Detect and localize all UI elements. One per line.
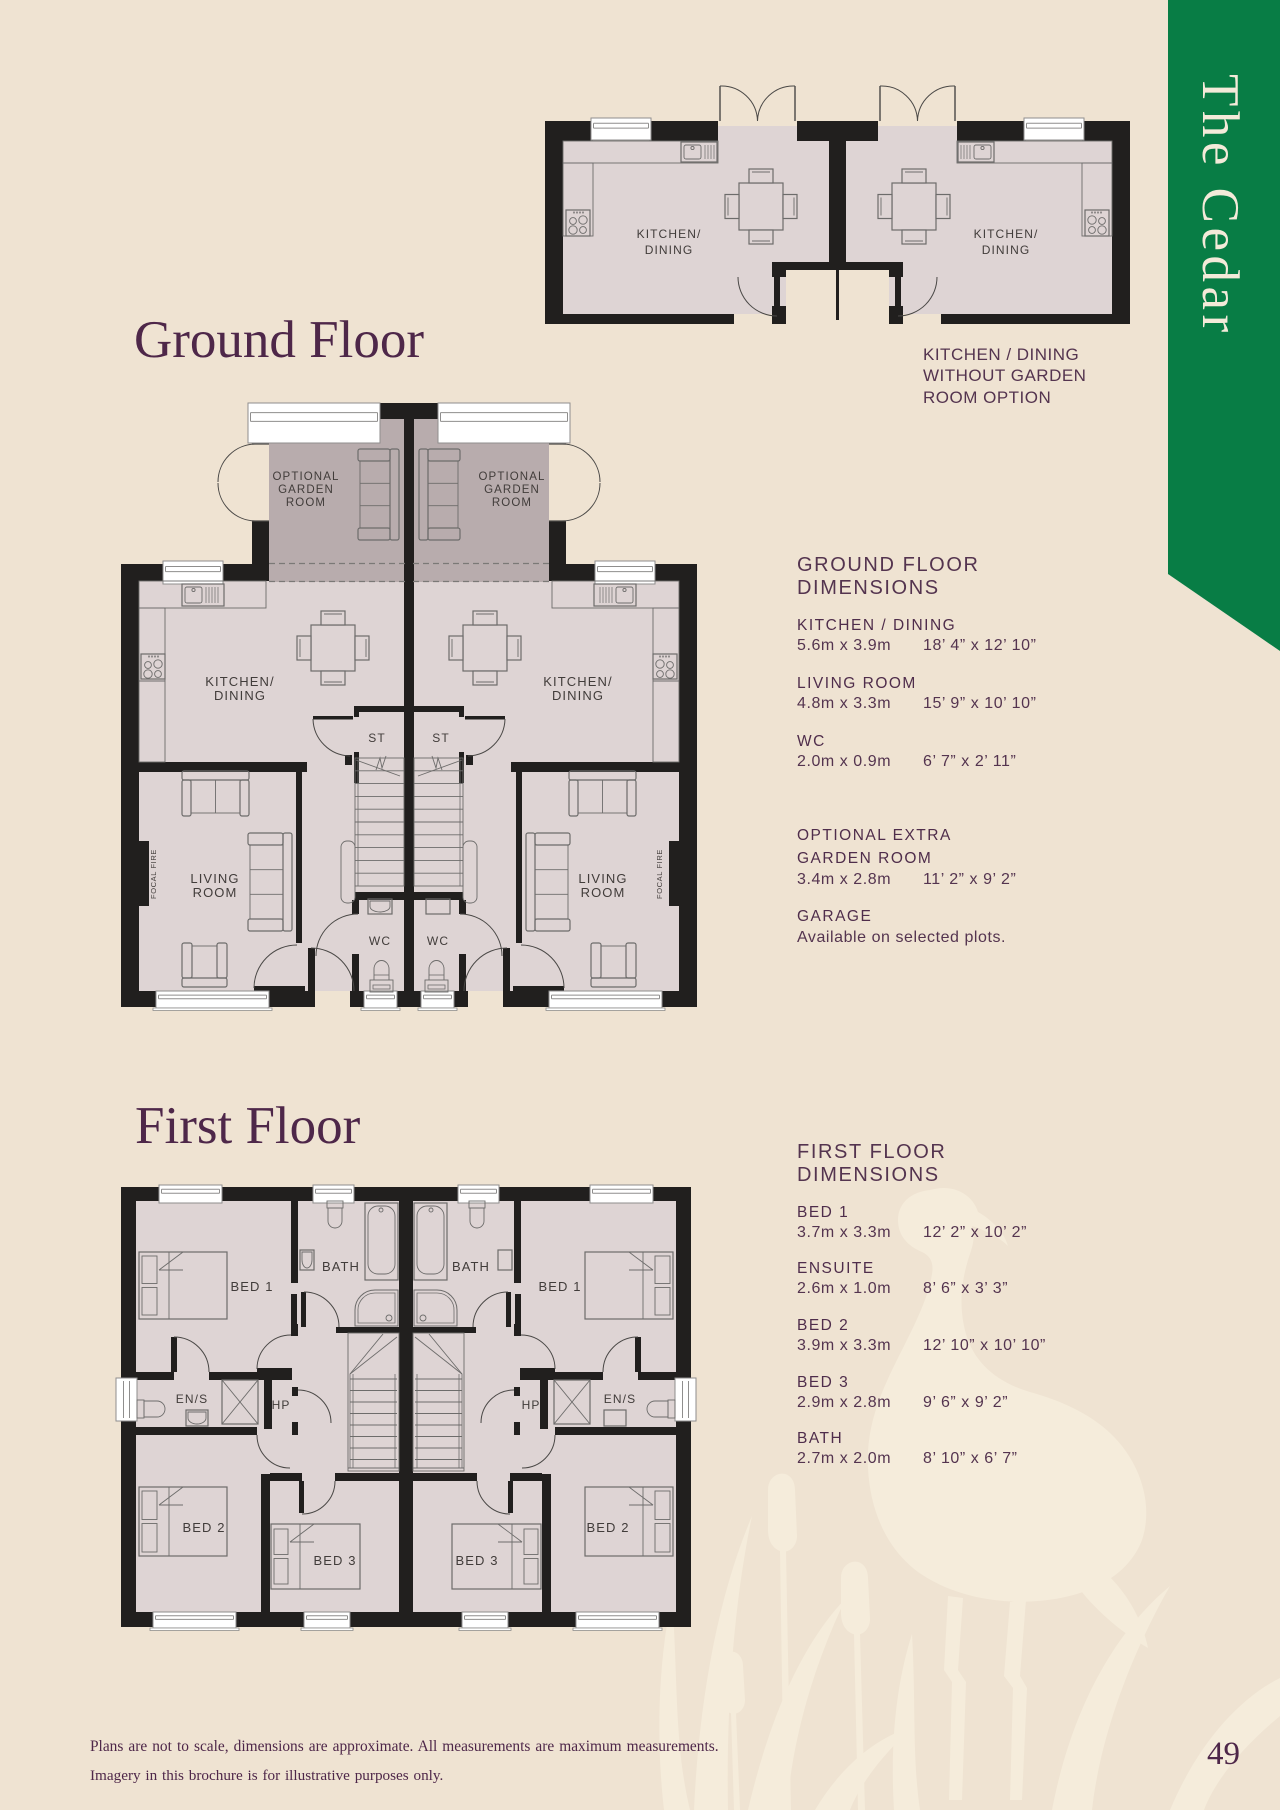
svg-text:KITCHEN/: KITCHEN/ <box>974 227 1039 241</box>
svg-text:ROOM: ROOM <box>581 885 626 900</box>
svg-text:EN/S: EN/S <box>176 1392 208 1406</box>
svg-text:The Cedar: The Cedar <box>1191 74 1249 337</box>
svg-text:KITCHEN/: KITCHEN/ <box>205 674 274 689</box>
svg-text:ROOM: ROOM <box>286 497 326 509</box>
svg-text:ROOM: ROOM <box>193 885 238 900</box>
svg-text:EN/S: EN/S <box>604 1392 636 1406</box>
svg-text:ROOM: ROOM <box>492 497 532 509</box>
svg-text:DINING: DINING <box>214 688 266 703</box>
svg-text:HP: HP <box>522 1398 541 1412</box>
svg-text:OPTIONAL: OPTIONAL <box>273 471 340 483</box>
svg-text:HP: HP <box>272 1398 291 1412</box>
svg-text:DINING: DINING <box>982 243 1031 257</box>
svg-text:LIVING: LIVING <box>190 871 239 886</box>
svg-text:ST: ST <box>432 731 450 745</box>
svg-text:GARDEN: GARDEN <box>484 484 540 496</box>
svg-text:WC: WC <box>369 934 391 948</box>
svg-text:BED 1: BED 1 <box>230 1279 273 1294</box>
svg-text:BED 2: BED 2 <box>182 1520 225 1535</box>
svg-text:FOCAL FIRE: FOCAL FIRE <box>149 849 158 899</box>
svg-text:GARDEN: GARDEN <box>278 484 334 496</box>
svg-text:LIVING: LIVING <box>578 871 627 886</box>
svg-text:KITCHEN/: KITCHEN/ <box>543 674 612 689</box>
svg-text:BED 2: BED 2 <box>586 1520 629 1535</box>
svg-text:BED 3: BED 3 <box>455 1553 498 1568</box>
svg-text:DINING: DINING <box>552 688 604 703</box>
svg-text:KITCHEN/: KITCHEN/ <box>637 227 702 241</box>
svg-text:FOCAL FIRE: FOCAL FIRE <box>655 849 664 899</box>
svg-text:BED 1: BED 1 <box>538 1279 581 1294</box>
svg-text:WC: WC <box>427 934 449 948</box>
svg-text:BATH: BATH <box>452 1259 490 1274</box>
svg-text:ST: ST <box>368 731 386 745</box>
svg-text:BATH: BATH <box>322 1259 360 1274</box>
svg-text:BED 3: BED 3 <box>313 1553 356 1568</box>
svg-text:DINING: DINING <box>645 243 694 257</box>
svg-text:OPTIONAL: OPTIONAL <box>479 471 546 483</box>
